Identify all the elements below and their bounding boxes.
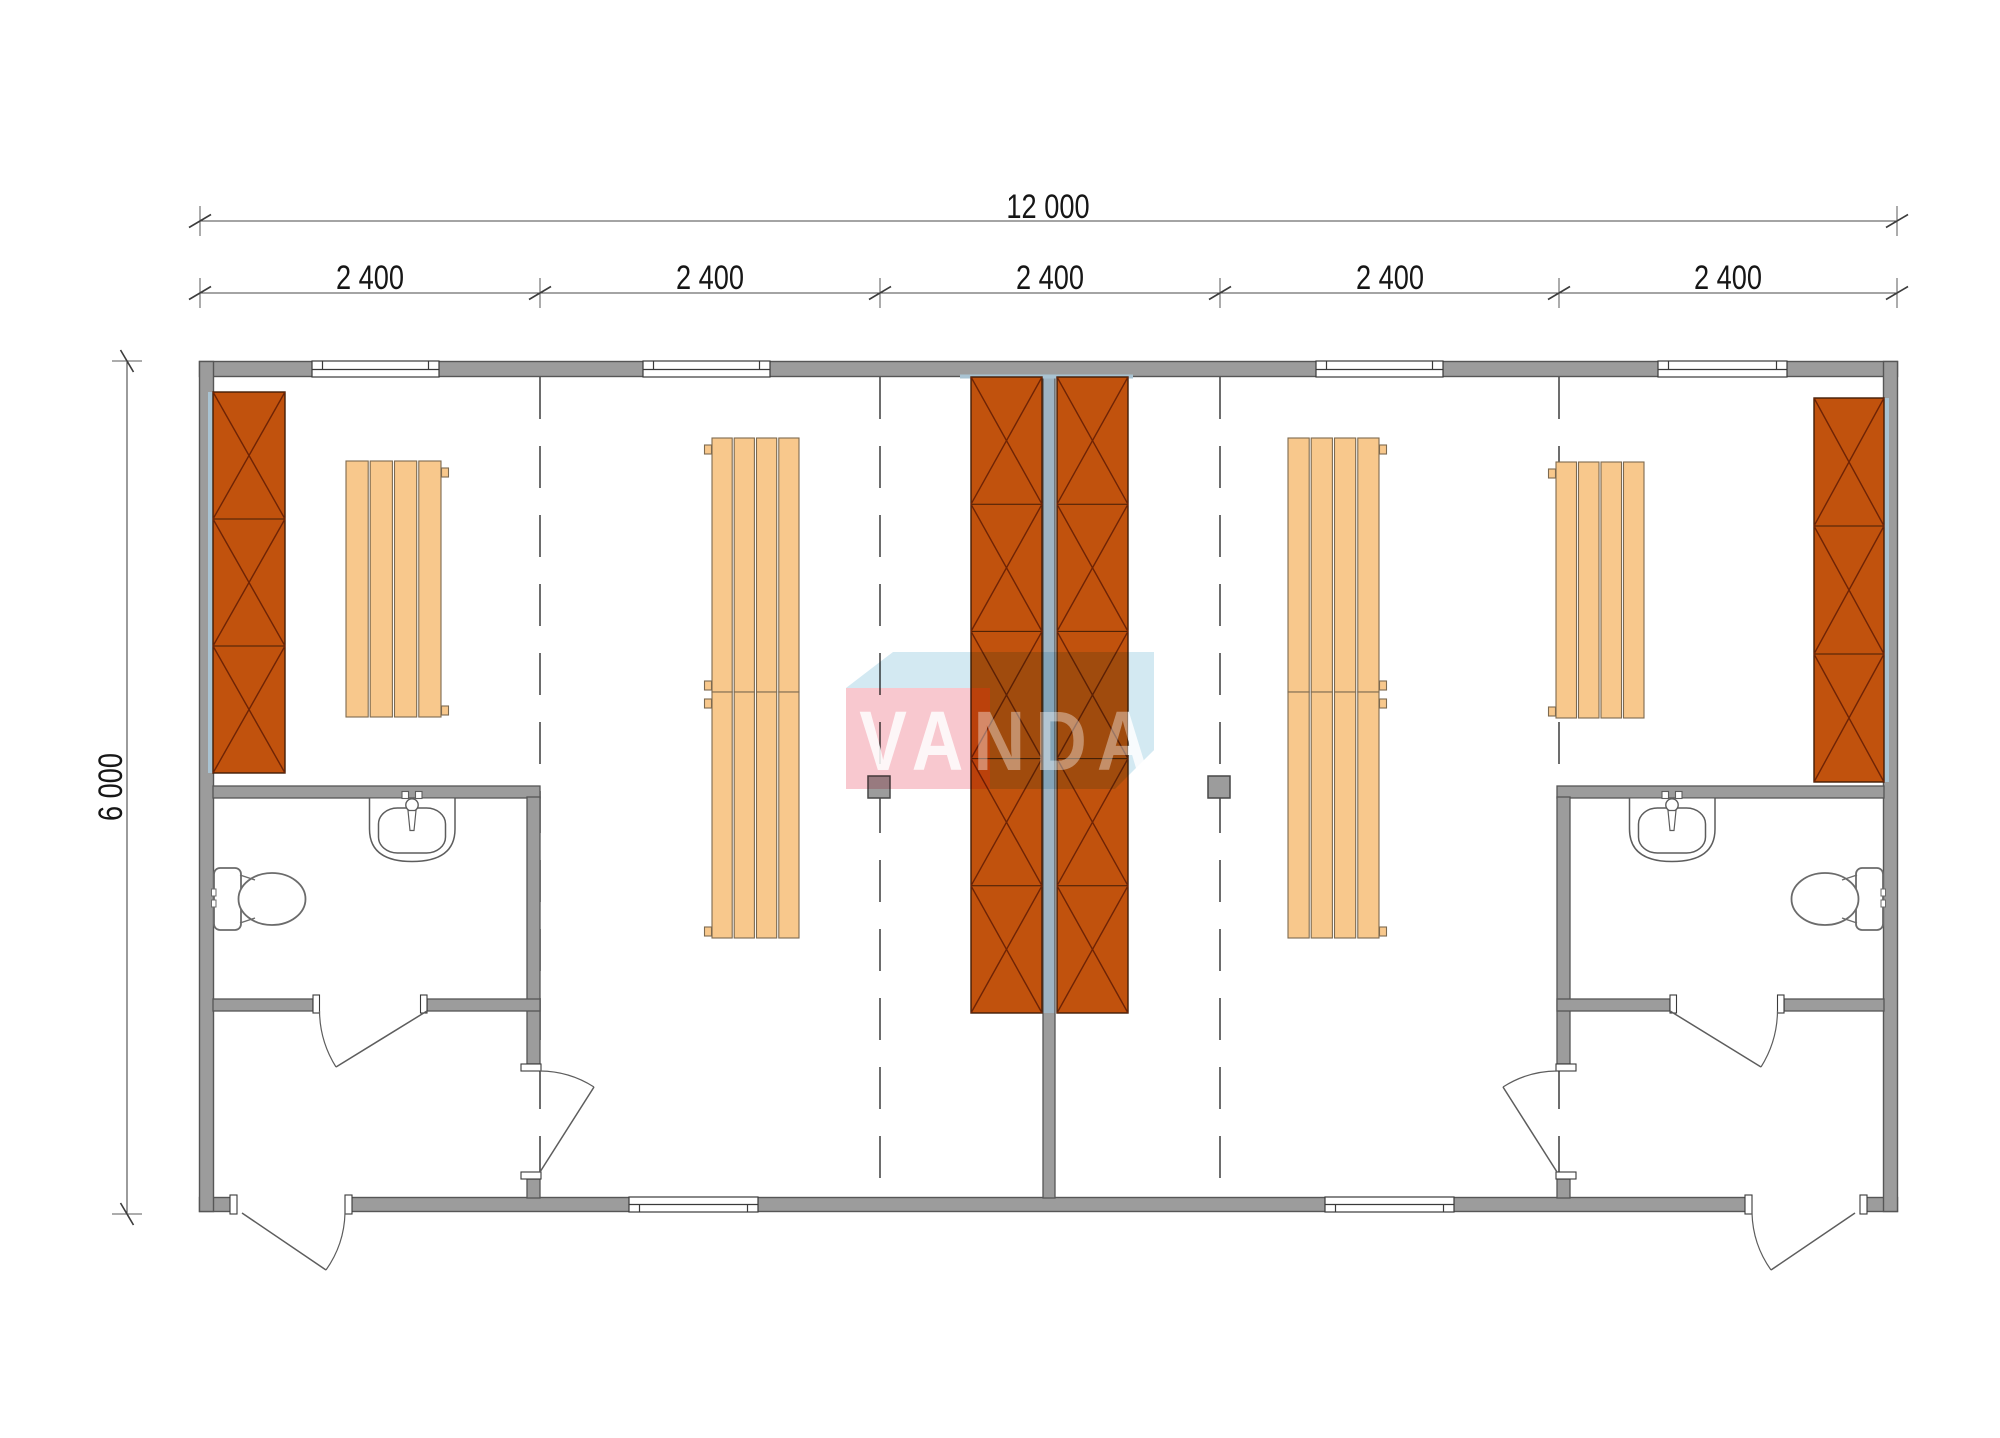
svg-text:2 400: 2 400 [1016, 258, 1084, 297]
svg-text:2 400: 2 400 [336, 258, 404, 297]
svg-text:6 000: 6 000 [91, 753, 130, 821]
svg-text:2 400: 2 400 [1356, 258, 1424, 297]
svg-text:2 400: 2 400 [1694, 258, 1762, 297]
svg-text:12 000: 12 000 [1006, 187, 1089, 226]
svg-text:2 400: 2 400 [676, 258, 744, 297]
